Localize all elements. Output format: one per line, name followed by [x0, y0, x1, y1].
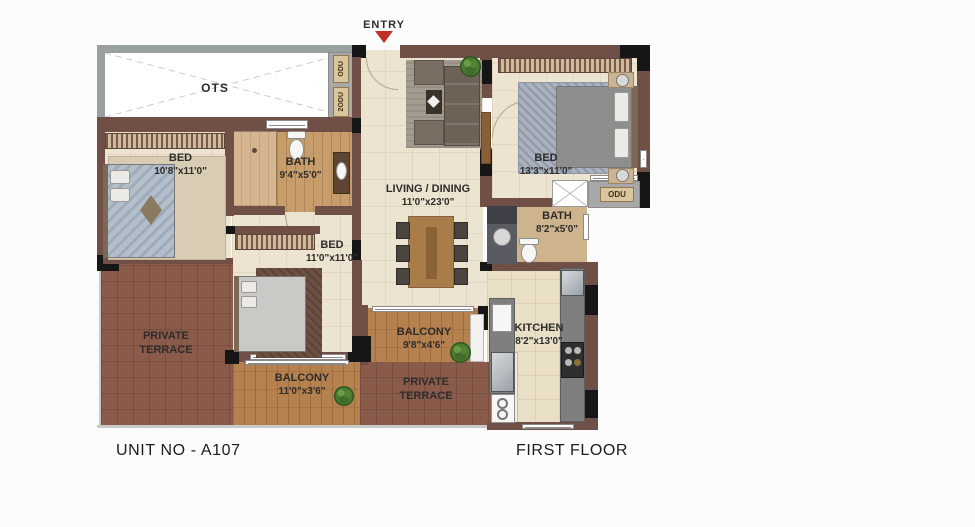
wall-bedmid-top: [225, 226, 320, 234]
label-living-dims: 11'0"x23'0": [374, 197, 482, 210]
window-right-wall: [640, 150, 647, 168]
dining-runner: [426, 227, 437, 279]
label-bed-left-name: BED: [133, 152, 228, 166]
label-bed-middle-dims: 11'0"x11'0": [292, 253, 372, 266]
odu-label-box-right: ODU: [600, 187, 634, 202]
caption-floor: FIRST FLOOR: [516, 442, 628, 460]
label-terrace-middle-text: PRIVATE TERRACE: [378, 376, 474, 404]
burner-3: [565, 359, 572, 366]
odu-label-box-top: ODU: [333, 55, 349, 83]
label-kitchen-dims: 8'2"x13'0": [500, 336, 578, 349]
wall-bathleft-bottom-a: [225, 206, 285, 215]
label-ots: OTS: [150, 81, 280, 96]
vanity-right-icon: [487, 206, 517, 224]
odu-label-right: ODU: [608, 190, 626, 199]
entry-arrow-icon: [375, 31, 393, 43]
label-bed-left-dims: 10'8"x11'0": [133, 166, 228, 179]
washbasin-right-icon: [493, 228, 511, 246]
wall-bedmid-bottom-black-l: [225, 350, 239, 364]
label-bed-middle: BED 11'0"x11'0": [292, 239, 372, 265]
sofa-main-icon: [444, 66, 480, 146]
wardrobe-left: [105, 133, 225, 149]
dining-chair-l1: [396, 222, 410, 239]
wall-bedmid-top-black: [225, 226, 235, 234]
fridge-icon: [491, 352, 514, 392]
bed-right-pillow-2: [614, 128, 629, 158]
toilet-right-tank: [519, 238, 539, 245]
dining-chair-r2: [454, 245, 468, 262]
tv-cabinet-icon: [481, 112, 491, 164]
label-balcony-middle-name: BALCONY: [382, 326, 466, 340]
label-bath-right: BATH 8'2"x5'0": [516, 210, 598, 236]
label-bath-left-dims: 9'4"x5'0": [253, 170, 348, 183]
label-terrace-middle: PRIVATE TERRACE: [378, 376, 474, 404]
dining-chair-r1: [454, 222, 468, 239]
wall-balconymid-black: [360, 336, 371, 362]
bed-middle-headboard: [234, 276, 239, 352]
odu-label-box-bottom: 2ODU: [333, 87, 349, 117]
shower-left-drain: [252, 148, 257, 153]
bed-right-pillow-1: [614, 92, 629, 122]
plant-living-icon: [460, 56, 481, 77]
label-bed-right-dims: 13'3"x11'0": [500, 166, 592, 179]
wall-right-black-top: [637, 45, 650, 71]
caption-unit-no: UNIT NO - A107: [116, 442, 241, 460]
balcony-left-handrail: [245, 360, 349, 365]
label-balcony-left: BALCONY 11'0"x3'6": [260, 372, 344, 398]
dining-chair-r3: [454, 268, 468, 285]
bed-left-pillow-2: [110, 188, 130, 202]
nightstand-lamp-top: [616, 74, 629, 87]
label-bed-left: BED 10'8"x11'0": [133, 152, 228, 178]
balcony-mid-french-door: [372, 306, 474, 312]
label-bed-right-name: BED: [500, 152, 592, 166]
label-balcony-middle: BALCONY 9'8"x4'6": [382, 326, 466, 352]
label-kitchen-name: KITCHEN: [500, 322, 578, 336]
terrace-outer-line: [97, 425, 520, 428]
washing-machine-drum-2: [497, 409, 508, 420]
label-ots-text: OTS: [150, 81, 280, 96]
bed-left-pillow-1: [110, 170, 130, 184]
label-bath-left-name: BATH: [253, 156, 348, 170]
bed-right-headboard: [632, 86, 638, 168]
odu-label-top: ODU: [338, 61, 345, 77]
floor-plan-canvas: ODU 2ODU: [0, 0, 975, 527]
washing-machine-icon: [491, 394, 515, 423]
label-balcony-left-name: BALCONY: [260, 372, 344, 386]
wall-mid-vertical: [352, 57, 361, 260]
wall-kitchen-right-black1: [585, 285, 598, 315]
odu-label-bottom: 2ODU: [338, 92, 345, 111]
entry-label-text: ENTRY: [363, 19, 405, 31]
window-ots-bottom: [266, 120, 308, 129]
label-living-dining: LIVING / DINING 11'0"x23'0": [374, 183, 482, 209]
dining-chair-l3: [396, 268, 410, 285]
wall-kitchen-right-black2: [585, 390, 598, 418]
burner-4: [574, 359, 581, 366]
label-bath-right-name: BATH: [516, 210, 598, 224]
dining-chair-l2: [396, 245, 410, 262]
wall-bathleft-bottom-b: [315, 206, 352, 215]
bed-middle-pillow-1: [241, 281, 257, 293]
sofa-chair-top-icon: [414, 60, 444, 85]
nightstand-lamp-bottom: [616, 169, 629, 182]
kitchen-appliance-icon: [561, 270, 584, 296]
label-terrace-left-text: PRIVATE TERRACE: [118, 330, 214, 358]
shaft-box: [552, 180, 588, 207]
washing-machine-drum-1: [497, 398, 508, 409]
wall-top: [400, 45, 638, 58]
label-bed-middle-name: BED: [292, 239, 372, 253]
toilet-right-icon: [521, 243, 537, 263]
wall-mid-black-1: [352, 118, 361, 133]
bed-middle-pillow-2: [241, 296, 257, 308]
label-kitchen: KITCHEN 8'2"x13'0": [500, 322, 578, 348]
label-bed-right: BED 13'3"x11'0": [500, 152, 592, 178]
label-bath-right-dims: 8'2"x5'0": [516, 224, 598, 237]
label-terrace-left: PRIVATE TERRACE: [118, 330, 214, 358]
bed-left-headboard: [103, 164, 108, 258]
label-balcony-middle-dims: 9'8"x4'6": [382, 340, 466, 353]
label-living-name: LIVING / DINING: [374, 183, 482, 197]
shaft-cross: [553, 181, 587, 206]
toilet-left-tank: [287, 131, 306, 139]
dining-table-icon: [408, 216, 454, 288]
sofa-chair-bottom-icon: [414, 120, 444, 145]
balcony-mid-door-panel: [470, 314, 484, 362]
window-kitchen-bottom: [522, 424, 574, 429]
label-balcony-left-dims: 11'0"x3'6": [260, 386, 344, 399]
label-bath-left: BATH 9'4"x5'0": [253, 156, 348, 182]
wardrobe-right: [498, 58, 632, 73]
